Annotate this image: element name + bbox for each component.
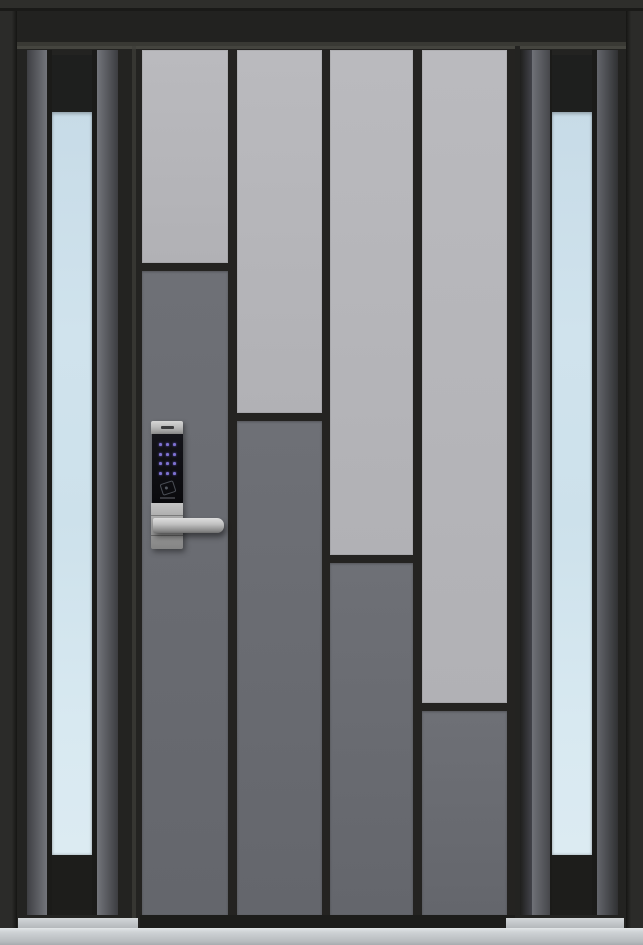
sidelite-right-mull-band — [520, 50, 532, 915]
keypad-dot — [166, 472, 169, 475]
sidelite-left — [17, 46, 140, 928]
lock-model-text — [160, 497, 175, 499]
door-column-2-dark-panel — [237, 421, 322, 915]
frame-outer-right — [626, 0, 643, 945]
sidelite-left-jamb-band-inner — [97, 50, 118, 915]
smart-lock-keypad — [152, 434, 183, 503]
smart-lock-top-cap — [151, 421, 183, 434]
keypad-dot — [173, 443, 176, 446]
keypad-dot — [159, 443, 162, 446]
sidelite-right-jamb-band-inner — [532, 50, 550, 915]
door-column-1-dark-panel — [142, 271, 228, 915]
sidelite-right-jamb-band-outer — [597, 50, 618, 915]
door-top-rail-highlight — [140, 46, 515, 49]
sidelite-left-top-highlight — [17, 46, 140, 49]
keypad-dot — [166, 453, 169, 456]
door-hinge-edge-highlight — [134, 46, 136, 928]
sidelite-left-jamb-band-outer — [27, 50, 47, 915]
door-product-photo — [0, 0, 643, 945]
sidelite-right-glass-header — [552, 55, 592, 112]
keypad-dot — [173, 462, 176, 465]
sidelite-right — [520, 46, 626, 928]
sidelite-right-top-highlight — [520, 46, 626, 49]
frame-header — [17, 11, 626, 46]
frame-outer-left — [0, 0, 17, 945]
lock-body-groove — [151, 535, 183, 536]
door-slab — [140, 46, 515, 928]
keypad-dot — [166, 462, 169, 465]
sidelite-left-glass-header — [52, 55, 92, 112]
sidelite-right-glass — [552, 112, 592, 855]
sidelite-right-glass-footer — [552, 855, 592, 915]
door-column-3-light-panel — [330, 50, 413, 555]
lock-body-groove — [151, 515, 183, 516]
keypad-dot — [173, 453, 176, 456]
keypad-digit-grid — [157, 440, 178, 478]
door-column-2-light-panel — [237, 50, 322, 413]
door-column-1-light-panel — [142, 50, 228, 263]
keypad-dot — [173, 472, 176, 475]
sidelite-left-glass — [52, 112, 92, 855]
door-lever-handle — [153, 518, 224, 533]
sidelite-left-glass-footer — [52, 855, 92, 915]
keypad-dot — [159, 462, 162, 465]
door-bottom-rail — [140, 915, 515, 928]
lock-brand-logo — [161, 426, 174, 429]
door-column-3-dark-panel — [330, 563, 413, 915]
door-column-4-light-panel — [422, 50, 507, 703]
keypad-dot — [159, 472, 162, 475]
door-column-4-dark-panel — [422, 711, 507, 915]
rfid-card-icon — [159, 480, 176, 496]
keypad-dot — [166, 443, 169, 446]
keypad-dot — [159, 453, 162, 456]
door-threshold — [0, 928, 643, 945]
frame-top-band — [0, 0, 643, 8]
